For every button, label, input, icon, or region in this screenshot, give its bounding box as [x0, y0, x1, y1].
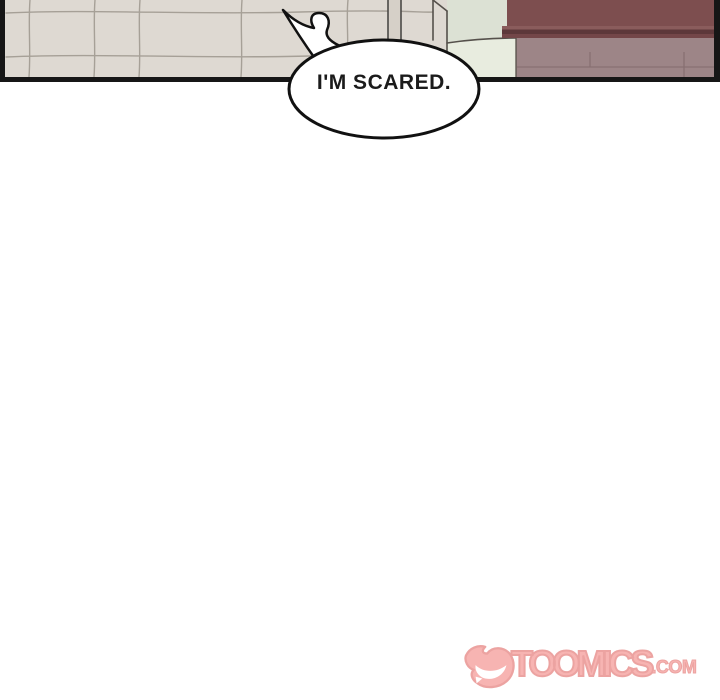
watermark-suffix-text: .COM — [651, 658, 696, 676]
toomics-mascot-icon — [464, 642, 518, 692]
webtoon-page: I'M SCARED. TOOMICS .COM — [0, 0, 720, 700]
toomics-watermark: TOOMICS .COM — [464, 638, 696, 696]
speech-bubble-text: I'M SCARED. — [284, 70, 484, 106]
watermark-brand-text: TOOMICS — [511, 638, 650, 690]
mascot-face — [465, 646, 513, 687]
